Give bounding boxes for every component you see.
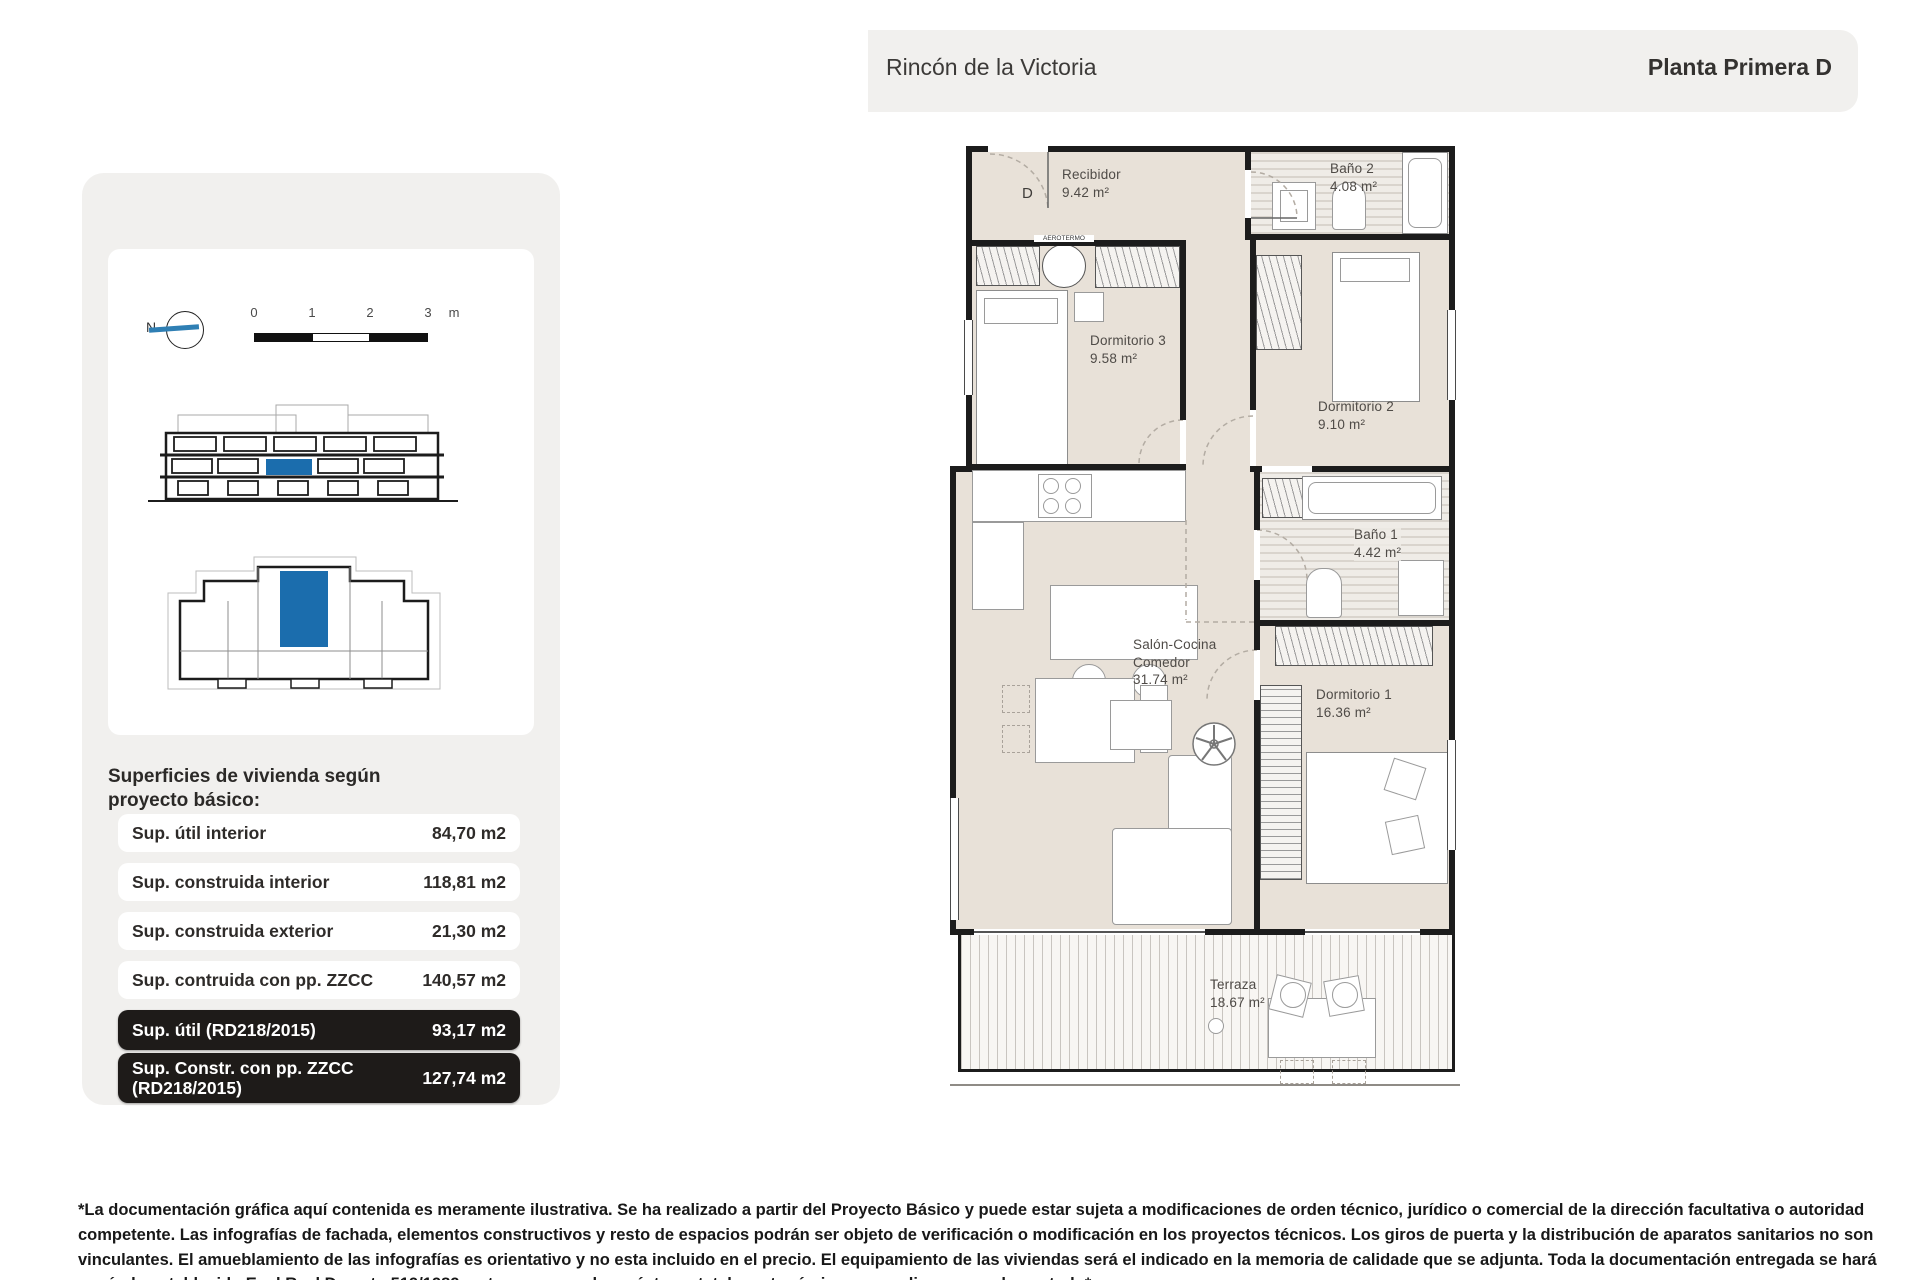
legend-card: N 0 1 2 3 m bbox=[108, 249, 534, 735]
room-label-bano2: Baño 2 4.08 m² bbox=[1330, 160, 1377, 195]
scale-unit: m bbox=[442, 305, 466, 320]
scale-tick-3: 3 bbox=[418, 305, 438, 320]
surface-row-label: Sup. útil interior bbox=[132, 823, 266, 843]
surface-row-value: 140,57 m2 bbox=[422, 970, 506, 991]
window-icon bbox=[1447, 740, 1456, 850]
wall bbox=[1254, 620, 1455, 626]
highlighted-unit-elevation bbox=[266, 459, 312, 475]
wall bbox=[1254, 580, 1260, 620]
surface-row-value: 118,81 m2 bbox=[423, 872, 506, 893]
wall bbox=[1048, 146, 1455, 152]
room-label-terraza: Terraza 18.67 m² bbox=[1210, 976, 1265, 1011]
room-label-recibidor: Recibidor 9.42 m² bbox=[1062, 166, 1121, 201]
wall bbox=[1254, 472, 1260, 530]
wall bbox=[1449, 472, 1455, 740]
room-label-dormitorio3: Dormitorio 3 9.58 m² bbox=[1090, 332, 1166, 367]
wall bbox=[1420, 929, 1455, 935]
room-label-dormitorio2: Dormitorio 2 9.10 m² bbox=[1318, 398, 1394, 433]
floor-plan: AEROTERMO bbox=[950, 140, 1460, 1090]
wall bbox=[966, 146, 972, 320]
floor-key-diagram bbox=[160, 541, 450, 721]
scale-bar-segment bbox=[254, 333, 312, 342]
wall bbox=[1254, 700, 1260, 929]
surface-row-label: Sup. Constr. con pp. ZZCC (RD218/2015) bbox=[132, 1058, 367, 1098]
window-icon bbox=[950, 798, 959, 920]
wall bbox=[1254, 626, 1260, 650]
wall bbox=[966, 395, 972, 472]
scale-tick-0: 0 bbox=[244, 305, 264, 320]
sliding-door-icon bbox=[1305, 931, 1420, 933]
entrance-door-label: D bbox=[1022, 184, 1033, 204]
wall bbox=[972, 464, 1186, 470]
wall bbox=[1312, 466, 1455, 472]
surface-row-highlighted: Sup. útil (RD218/2015) 93,17 m2 bbox=[118, 1010, 520, 1050]
wall bbox=[950, 929, 974, 935]
window-icon bbox=[964, 320, 973, 395]
surface-row: Sup. útil interior 84,70 m2 bbox=[118, 814, 520, 852]
surface-row-label: Sup. contruida con pp. ZZCC bbox=[132, 970, 373, 990]
door-arcs bbox=[950, 140, 1460, 1090]
wall bbox=[1205, 929, 1305, 935]
scale-bar-segment bbox=[370, 333, 428, 342]
wall bbox=[1250, 240, 1256, 410]
highlighted-unit-keyplan bbox=[280, 571, 328, 647]
project-title: Rincón de la Victoria bbox=[886, 54, 1097, 81]
surface-row: Sup. construida exterior 21,30 m2 bbox=[118, 912, 520, 950]
wall bbox=[1245, 234, 1455, 240]
surface-row-value: 93,17 m2 bbox=[432, 1020, 506, 1041]
room-label-bano1: Baño 1 4.42 m² bbox=[1354, 526, 1401, 561]
sidebar-panel: N 0 1 2 3 m bbox=[82, 173, 560, 1105]
plan-title: Planta Primera D bbox=[1648, 54, 1832, 81]
room-label-salon: Salón-Cocina Comedor 31.74 m² bbox=[1133, 636, 1229, 689]
scale-tick-2: 2 bbox=[360, 305, 380, 320]
aerotermo-label: AEROTERMO bbox=[1034, 235, 1094, 242]
wall bbox=[1449, 146, 1455, 310]
header-band: Rincón de la Victoria Planta Primera D bbox=[868, 30, 1858, 112]
surface-row-value: 21,30 m2 bbox=[432, 921, 506, 942]
wall bbox=[1245, 146, 1251, 170]
room-label-dormitorio1: Dormitorio 1 16.36 m² bbox=[1316, 686, 1392, 721]
scale-bar-segment bbox=[312, 333, 370, 342]
surface-row-label: Sup. construida exterior bbox=[132, 921, 333, 941]
scale-tick-1: 1 bbox=[302, 305, 322, 320]
wall bbox=[1180, 240, 1186, 420]
building-elevation-diagram bbox=[148, 397, 458, 527]
surface-row-label: Sup. útil (RD218/2015) bbox=[132, 1020, 316, 1040]
surface-row-label: Sup. construida interior bbox=[132, 872, 329, 892]
wall bbox=[950, 466, 956, 798]
brochure-page: Rincón de la Victoria Planta Primera D N… bbox=[0, 0, 1920, 1280]
surface-row: Sup. construida interior 118,81 m2 bbox=[118, 863, 520, 901]
surface-row: Sup. contruida con pp. ZZCC 140,57 m2 bbox=[118, 961, 520, 999]
sliding-door-icon bbox=[974, 931, 1205, 933]
surface-row-value: 84,70 m2 bbox=[432, 823, 506, 844]
disclaimer-text: *La documentación gráfica aquí contenida… bbox=[78, 1198, 1920, 1280]
surface-row-highlighted: Sup. Constr. con pp. ZZCC (RD218/2015) 1… bbox=[118, 1053, 520, 1103]
surface-row-value: 127,74 m2 bbox=[422, 1068, 506, 1089]
surfaces-heading: Superficies de vivienda según proyecto b… bbox=[108, 765, 408, 813]
window-icon bbox=[1447, 310, 1456, 400]
wall bbox=[1449, 400, 1455, 472]
wall bbox=[1449, 850, 1455, 929]
